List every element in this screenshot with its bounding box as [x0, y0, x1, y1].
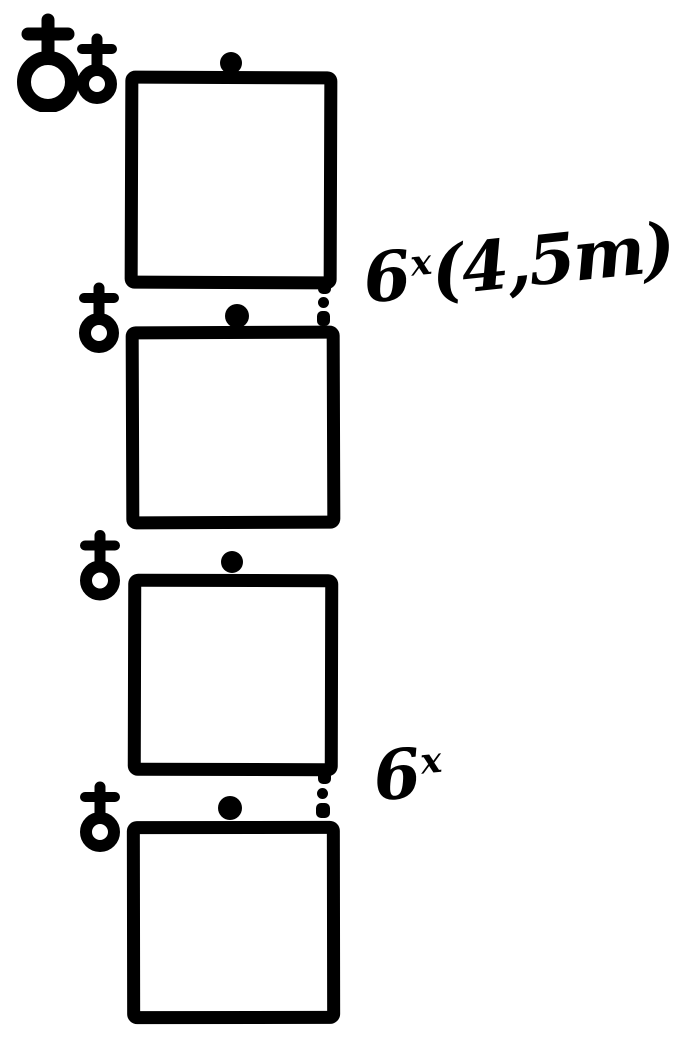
circle-cross-icon-small-top	[74, 32, 120, 104]
plot-square-4	[127, 821, 340, 1024]
cross-label-1-suffix: (4,5m)	[427, 208, 677, 313]
offspring-dot-2	[225, 304, 249, 328]
connector-1-dot	[318, 297, 329, 308]
circle-cross-icon-large	[14, 8, 82, 112]
cross-label-2-base: 6	[369, 733, 422, 817]
circle-cross-icon-3	[77, 528, 123, 601]
plot-square-3	[128, 574, 339, 777]
offspring-dot-3	[221, 551, 243, 573]
connector-2-stub-top	[318, 771, 331, 784]
connector-2-stub-bottom	[316, 803, 330, 818]
circle-cross-icon-4	[77, 778, 123, 854]
cross-label-2-sup: x	[418, 740, 441, 783]
cross-label-1: 6x(4,5m)	[360, 213, 676, 313]
circle-cross-icon-2	[76, 281, 122, 353]
offspring-dot-4	[218, 796, 242, 820]
connector-1-stub-bottom	[317, 311, 330, 326]
plot-square-2	[126, 326, 341, 530]
cross-label-1-base: 6	[359, 235, 412, 319]
diagram-canvas: 6x(4,5m) 6x	[0, 0, 688, 1048]
plot-square-1	[125, 71, 338, 290]
connector-1-stub-top	[318, 281, 331, 294]
offspring-dot-1	[220, 52, 242, 74]
connector-2-dot	[317, 788, 328, 799]
cross-label-2: 6x	[370, 737, 445, 812]
